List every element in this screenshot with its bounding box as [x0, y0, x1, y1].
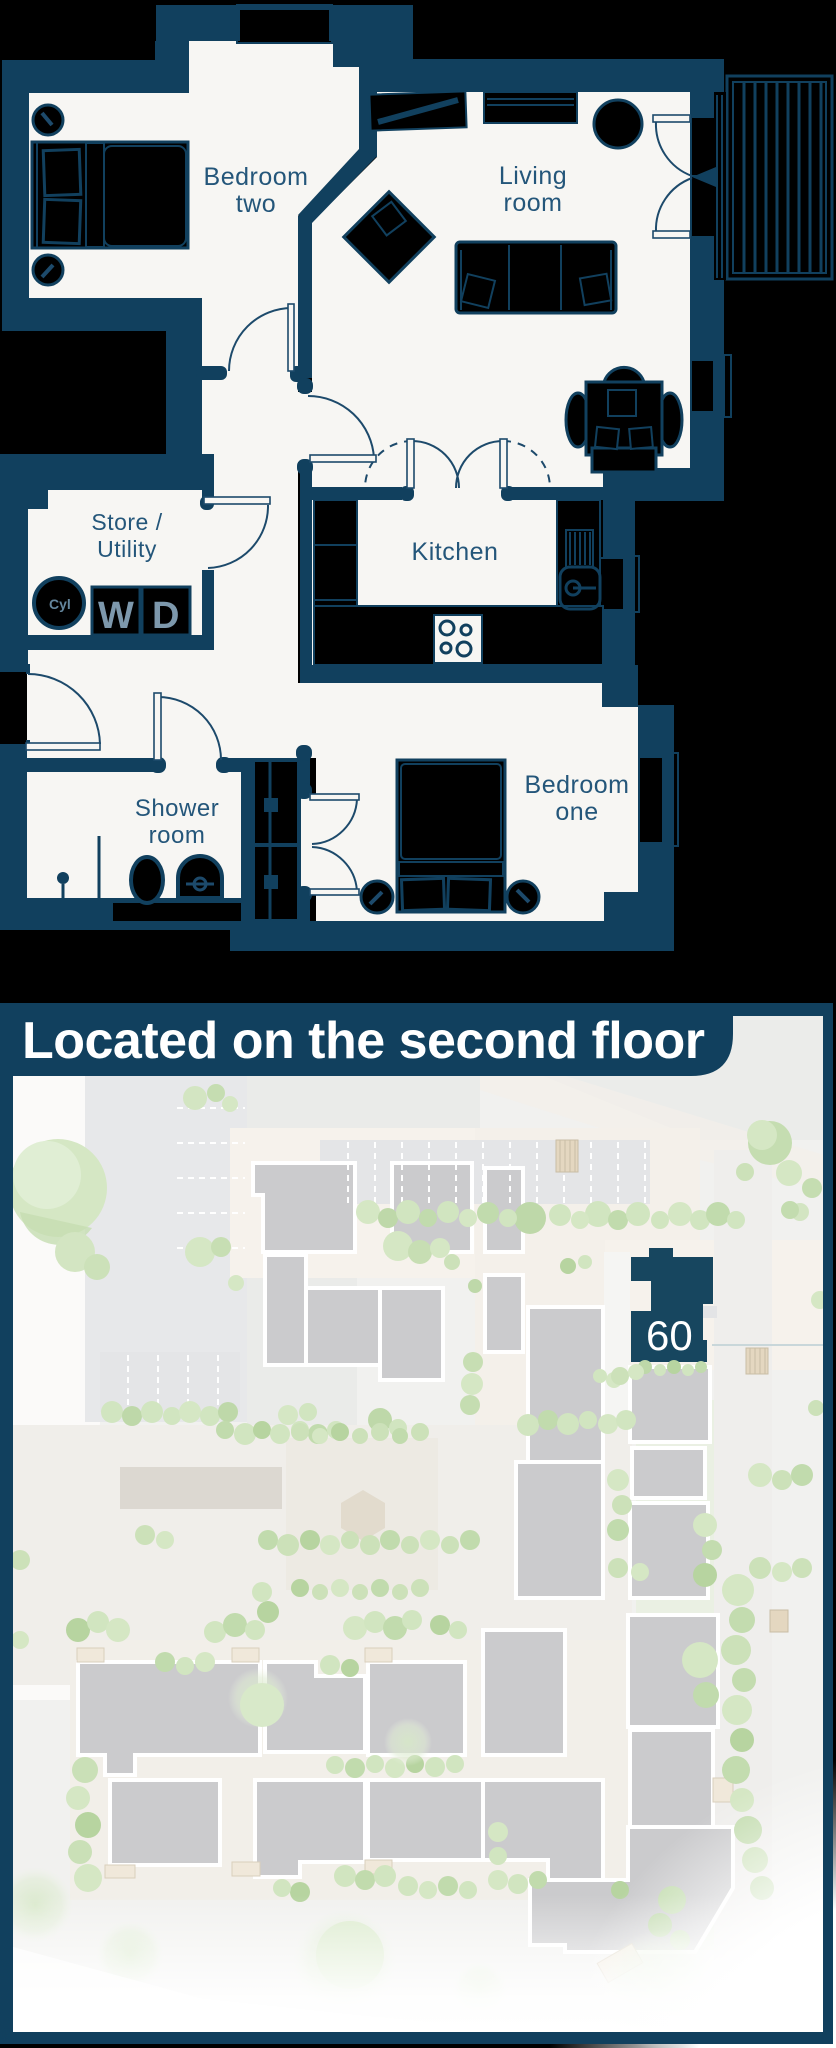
- svg-text:Kitchen: Kitchen: [412, 538, 499, 566]
- svg-text:Cyl: Cyl: [49, 596, 71, 612]
- svg-text:W: W: [98, 595, 134, 637]
- svg-text:Bedroom: Bedroom: [204, 163, 309, 191]
- svg-text:Utility: Utility: [97, 536, 157, 562]
- svg-text:Living: Living: [499, 162, 567, 190]
- svg-text:room: room: [504, 189, 563, 217]
- svg-text:60: 60: [646, 1312, 693, 1359]
- svg-text:two: two: [236, 190, 276, 218]
- svg-text:Bedroom: Bedroom: [525, 771, 630, 799]
- svg-text:Store /: Store /: [91, 509, 162, 535]
- svg-text:Located on the second floor: Located on the second floor: [22, 1012, 705, 1070]
- svg-text:D: D: [152, 595, 179, 637]
- svg-text:room: room: [149, 822, 206, 849]
- svg-text:Shower: Shower: [135, 795, 219, 822]
- svg-text:one: one: [555, 798, 598, 826]
